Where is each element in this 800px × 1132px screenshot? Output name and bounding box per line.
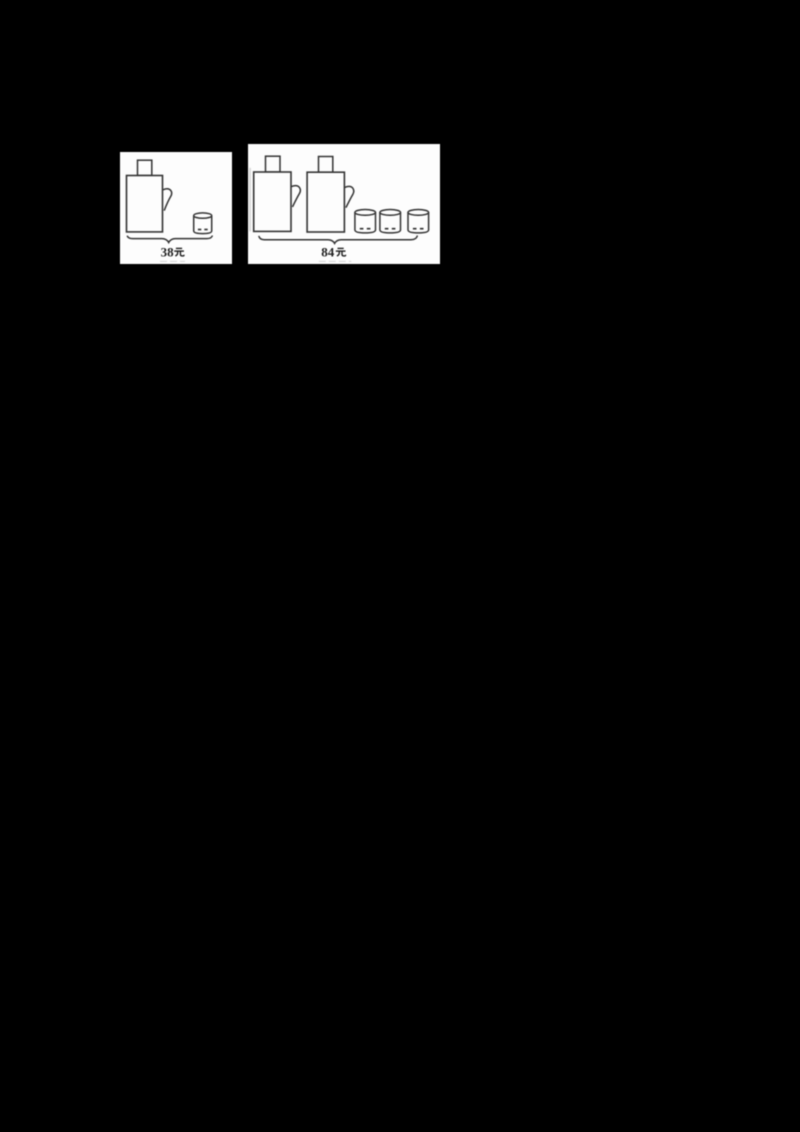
svg-text:38: 38 (161, 244, 175, 259)
svg-text:84: 84 (321, 244, 335, 259)
